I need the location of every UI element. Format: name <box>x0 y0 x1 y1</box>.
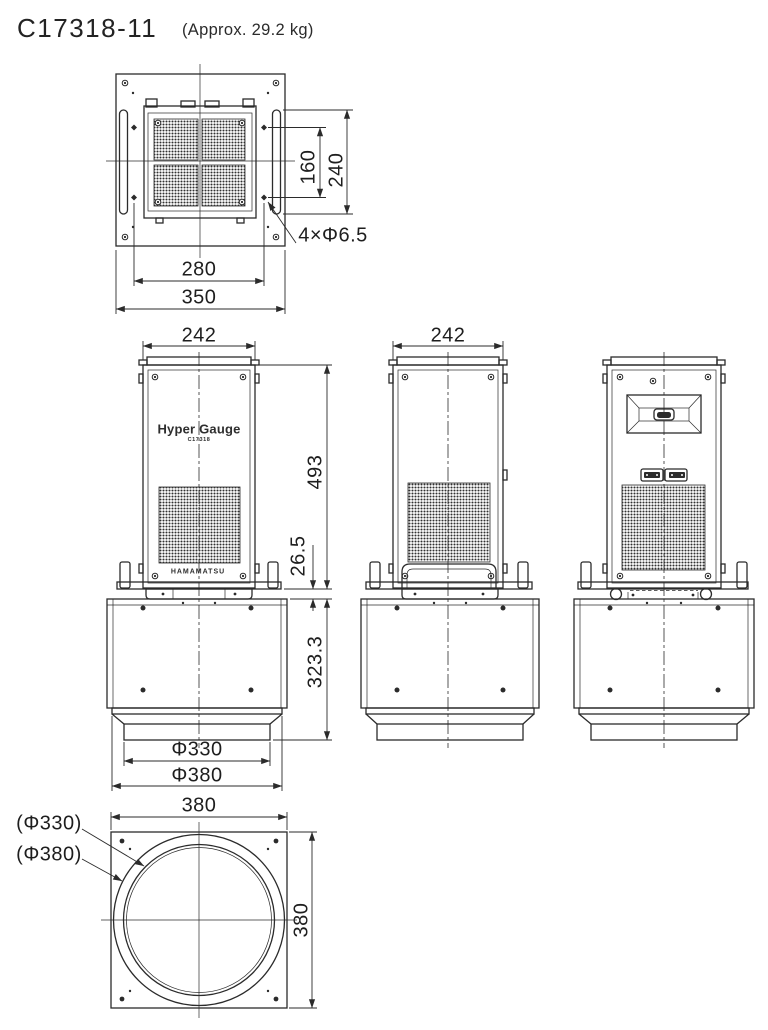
top-view-drawing <box>106 64 353 314</box>
ref-inner-dia: (Φ330) <box>16 813 82 836</box>
mounting-holes-note: 4×Φ6.5 <box>298 225 368 248</box>
brand-mark: HAMAMATSU <box>171 569 225 576</box>
dim-front-width: 242 <box>182 325 217 348</box>
dim-plate-width: 350 <box>182 287 217 310</box>
ref-outer-dia: (Φ380) <box>16 844 82 867</box>
rear-view-drawing <box>574 352 754 748</box>
dim-hole-pitch-h: 280 <box>182 259 217 282</box>
dim-base-height: 323.3 <box>305 636 328 689</box>
bottom-view-drawing <box>82 812 317 1018</box>
dim-base-dia: Φ380 <box>171 765 222 788</box>
dim-bottom-width: 380 <box>182 795 217 818</box>
side-view-drawing <box>361 341 539 748</box>
dim-bottom-depth: 380 <box>291 903 314 938</box>
page-title: C17318-11 <box>17 13 157 44</box>
dim-hole-pitch-v: 160 <box>298 150 321 185</box>
product-logo-model: C17318 <box>188 437 211 443</box>
product-logo: Hyper Gauge <box>157 422 240 437</box>
technical-drawing-page: C17318-11 (Approx. 29.2 kg) 160 240 4×Φ6… <box>0 0 768 1030</box>
dim-body-height: 493 <box>305 455 328 490</box>
weight-note: (Approx. 29.2 kg) <box>182 21 314 40</box>
drawing-canvas <box>0 0 768 1030</box>
dim-side-width: 242 <box>431 325 466 348</box>
dim-neck-dia: Φ330 <box>171 739 222 762</box>
dim-gap: 26.5 <box>288 536 311 577</box>
dim-slot-pitch-v: 240 <box>326 153 349 188</box>
